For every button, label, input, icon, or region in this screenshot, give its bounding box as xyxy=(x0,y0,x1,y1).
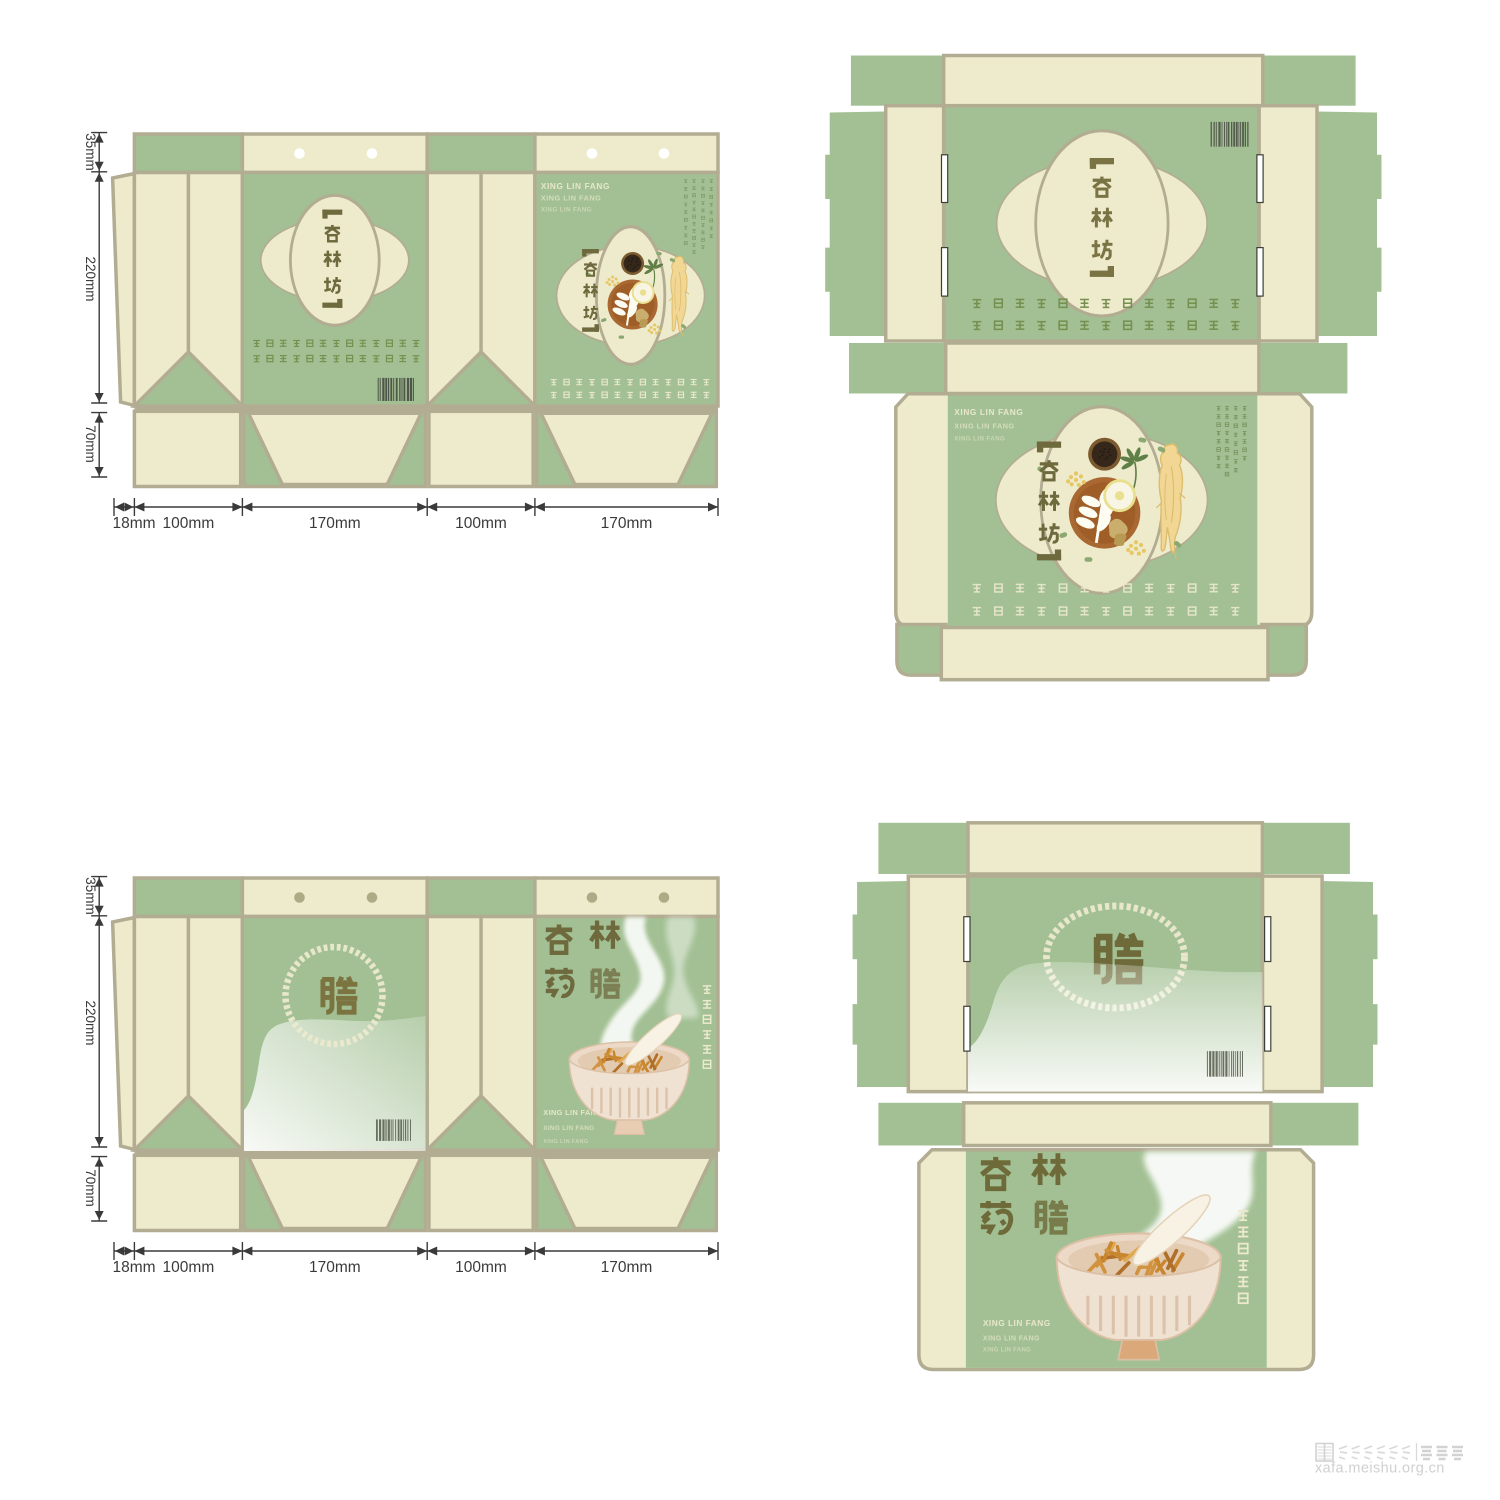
svg-text:XING LIN FANG: XING LIN FANG xyxy=(543,1139,588,1145)
svg-text:220mm: 220mm xyxy=(83,1000,98,1045)
svg-text:100mm: 100mm xyxy=(163,1259,215,1276)
svg-text:XING LIN FANG: XING LIN FANG xyxy=(543,1125,594,1132)
svg-text:XING LIN FANG: XING LIN FANG xyxy=(954,436,1005,443)
svg-text:xafa.meishu.org.cn: xafa.meishu.org.cn xyxy=(1315,1461,1445,1477)
svg-text:220mm: 220mm xyxy=(83,256,98,301)
svg-text:35mm: 35mm xyxy=(83,133,98,171)
svg-text:100mm: 100mm xyxy=(163,515,215,532)
svg-text:100mm: 100mm xyxy=(455,515,507,532)
svg-text:XING LIN FANG: XING LIN FANG xyxy=(983,1348,1031,1354)
svg-text:170mm: 170mm xyxy=(309,1259,361,1276)
svg-text:35mm: 35mm xyxy=(83,877,98,915)
svg-text:XING LIN FANG: XING LIN FANG xyxy=(954,407,1023,417)
svg-text:XING LIN FANG: XING LIN FANG xyxy=(541,207,592,214)
svg-text:XING LIN FANG: XING LIN FANG xyxy=(541,181,610,191)
svg-text:18mm: 18mm xyxy=(112,1259,155,1276)
svg-text:18mm: 18mm xyxy=(112,515,155,532)
svg-text:XING LIN FANG: XING LIN FANG xyxy=(541,194,601,203)
svg-text:XING LIN FANG: XING LIN FANG xyxy=(983,1318,1051,1328)
svg-text:XING LIN FANG: XING LIN FANG xyxy=(983,1336,1040,1343)
svg-text:170mm: 170mm xyxy=(309,515,361,532)
svg-text:170mm: 170mm xyxy=(601,515,653,532)
svg-text:70mm: 70mm xyxy=(83,425,98,463)
svg-text:170mm: 170mm xyxy=(601,1259,653,1276)
svg-text:100mm: 100mm xyxy=(455,1259,507,1276)
svg-text:70mm: 70mm xyxy=(83,1169,98,1207)
svg-text:XING LIN FANG: XING LIN FANG xyxy=(954,422,1014,431)
